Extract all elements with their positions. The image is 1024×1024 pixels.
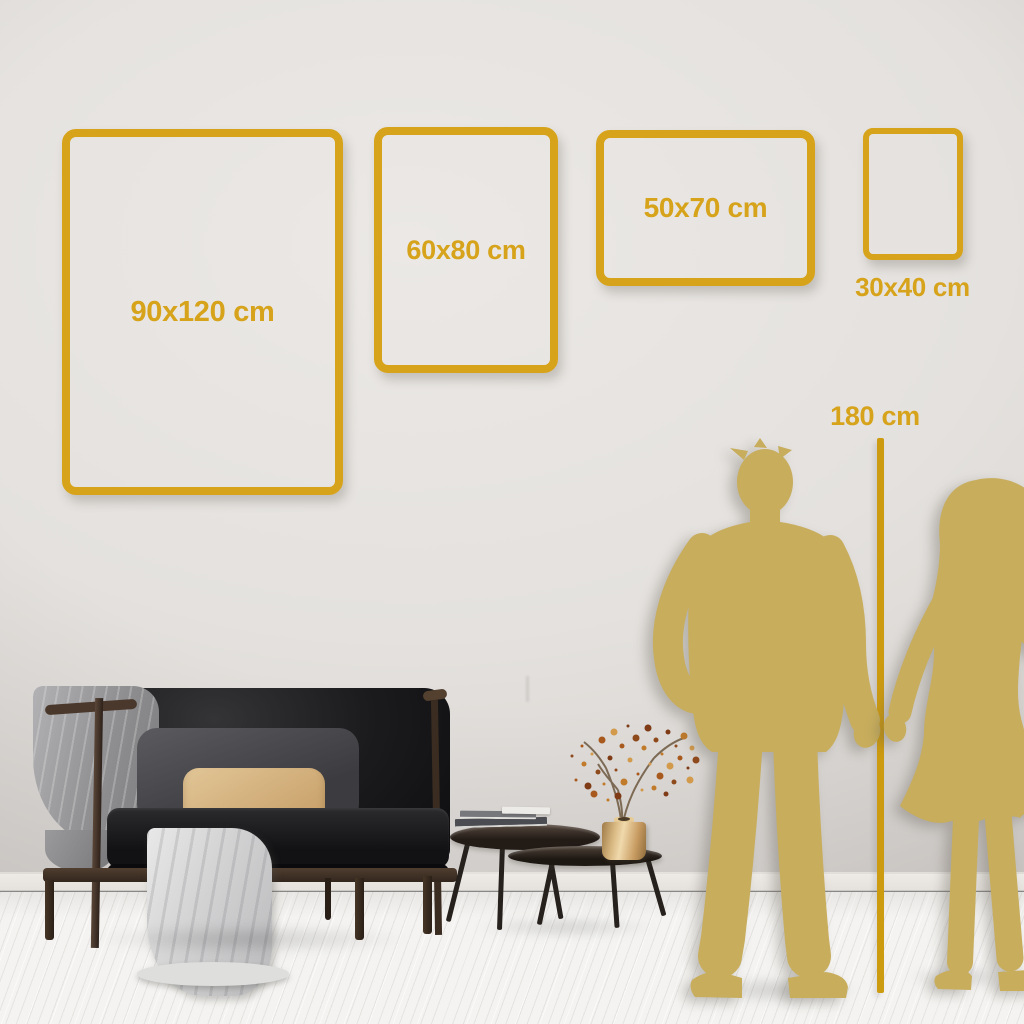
- size-label-60x80: 60x80 cm: [406, 235, 525, 266]
- man-right-leg: [795, 738, 809, 956]
- size-label-50x70: 50x70 cm: [644, 192, 768, 224]
- size-frame-90x120: 90x120 cm: [62, 129, 343, 495]
- sofa-leg: [325, 878, 331, 920]
- woman-neck: [965, 540, 985, 556]
- gray-blanket-tail: [45, 830, 113, 872]
- size-guide-scene: 90x120 cm 60x80 cm 50x70 cm 30x40 cm 180…: [0, 0, 1024, 1024]
- woman-right-foot: [998, 970, 1024, 991]
- wall-smudge: [526, 676, 529, 702]
- woman-left-foot: [934, 970, 972, 990]
- woman-right-leg: [998, 814, 1010, 958]
- sofa-floor-shadow: [35, 920, 465, 958]
- man-right-foot: [788, 972, 848, 998]
- size-frame-60x80: 60x80 cm: [374, 127, 558, 373]
- height-reference-label: 180 cm: [790, 401, 960, 432]
- table-leg: [446, 839, 471, 922]
- woman-dress: [900, 554, 1024, 823]
- size-label-30x40: 30x40 cm: [822, 272, 1003, 303]
- sofa: [25, 680, 455, 1010]
- man-left-foot: [691, 972, 742, 998]
- man-silhouette: [648, 438, 890, 1008]
- woman-silhouette: [878, 470, 1024, 1010]
- vase-mouth: [618, 817, 630, 821]
- man-left-leg: [720, 738, 741, 956]
- woman-head: [950, 486, 1000, 546]
- white-throw-spill: [137, 962, 289, 986]
- sofa-leg: [423, 876, 432, 934]
- size-frame-50x70: 50x70 cm: [596, 130, 815, 286]
- brass-vase: [602, 822, 646, 860]
- size-frame-30x40: [863, 128, 963, 260]
- size-label-90x120: 90x120 cm: [130, 296, 274, 329]
- woman-left-leg: [960, 818, 966, 962]
- book: [502, 807, 550, 815]
